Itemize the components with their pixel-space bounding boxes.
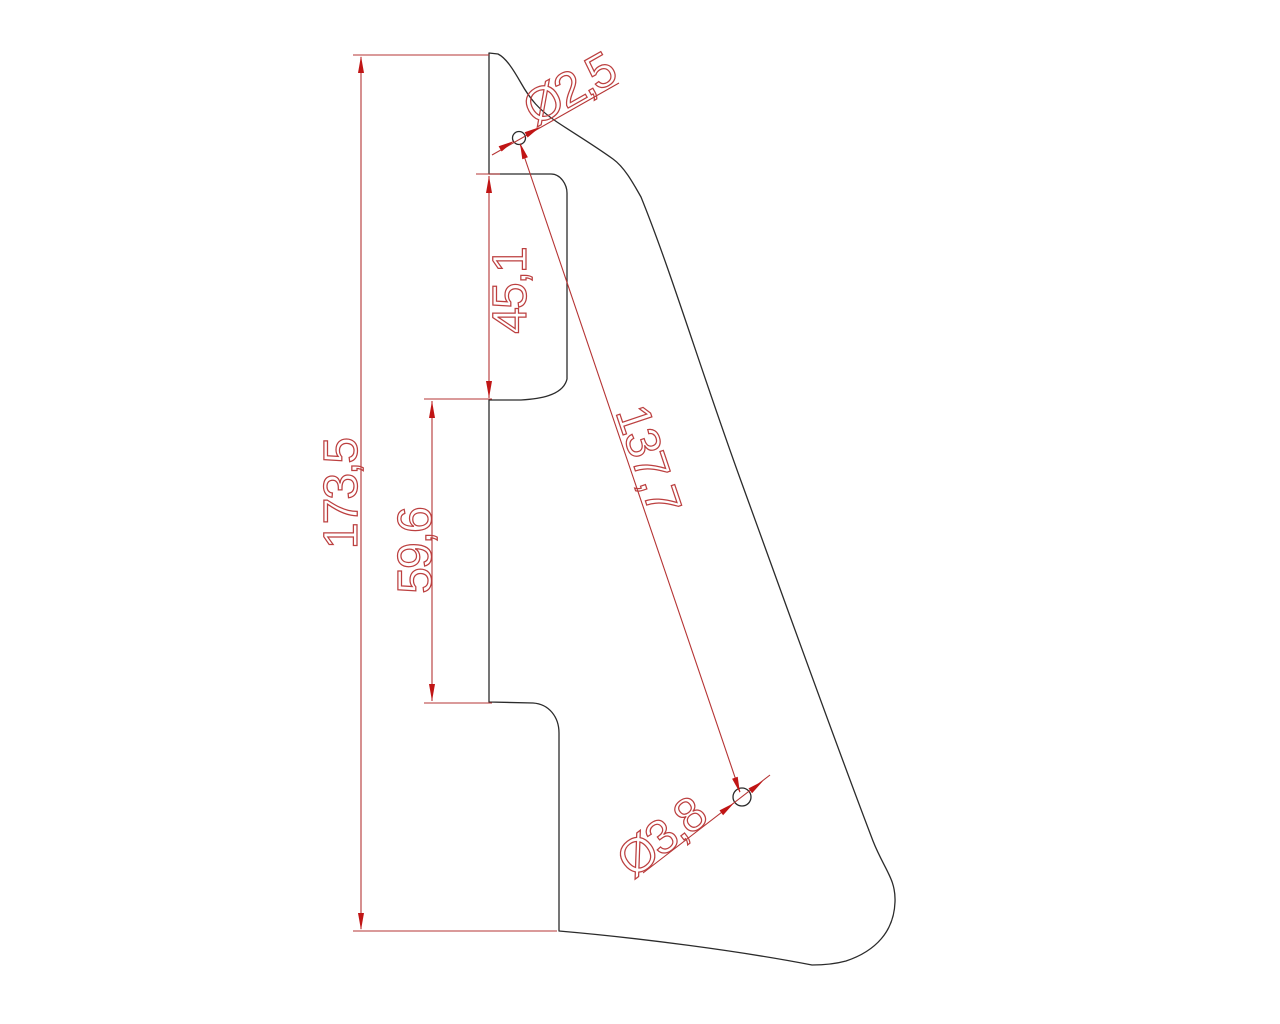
cad-drawing-svg: 173,5 45,1 59,6 137,7 <box>0 0 1280 1024</box>
arrowhead-up-icon <box>429 401 435 418</box>
dimension-notch-height: 45,1 <box>476 174 537 398</box>
dimension-hole-distance: 137,7 <box>520 143 740 793</box>
arrowhead-down-icon <box>429 684 435 701</box>
dim-label-notch-height: 45,1 <box>484 248 537 334</box>
arrowhead-near-icon <box>499 141 514 152</box>
arrowhead-upper-icon <box>520 143 528 159</box>
dimension-overall-height: 173,5 <box>315 55 557 931</box>
dimension-mid-edge-height: 59,6 <box>389 399 492 703</box>
dim-label-upper-hole-diameter: Ø2,5 <box>515 43 625 137</box>
drawing-canvas: 173,5 45,1 59,6 137,7 <box>0 0 1280 1024</box>
arrowhead-down-icon <box>486 381 492 398</box>
arrowhead-down-icon <box>358 913 364 930</box>
dim-label-lower-hole-diameter: Ø3,8 <box>607 787 716 888</box>
dim-label-mid-edge-height: 59,6 <box>389 508 442 594</box>
arrowhead-up-icon <box>358 56 364 73</box>
dim-label-overall-height: 173,5 <box>315 439 368 549</box>
arrowhead-near-icon <box>720 803 735 815</box>
dim-label-hole-distance: 137,7 <box>605 398 690 520</box>
dimension-lower-hole-diameter: Ø3,8 <box>607 775 770 888</box>
arrowhead-far-icon <box>749 781 764 793</box>
arrowhead-up-icon <box>486 176 492 193</box>
